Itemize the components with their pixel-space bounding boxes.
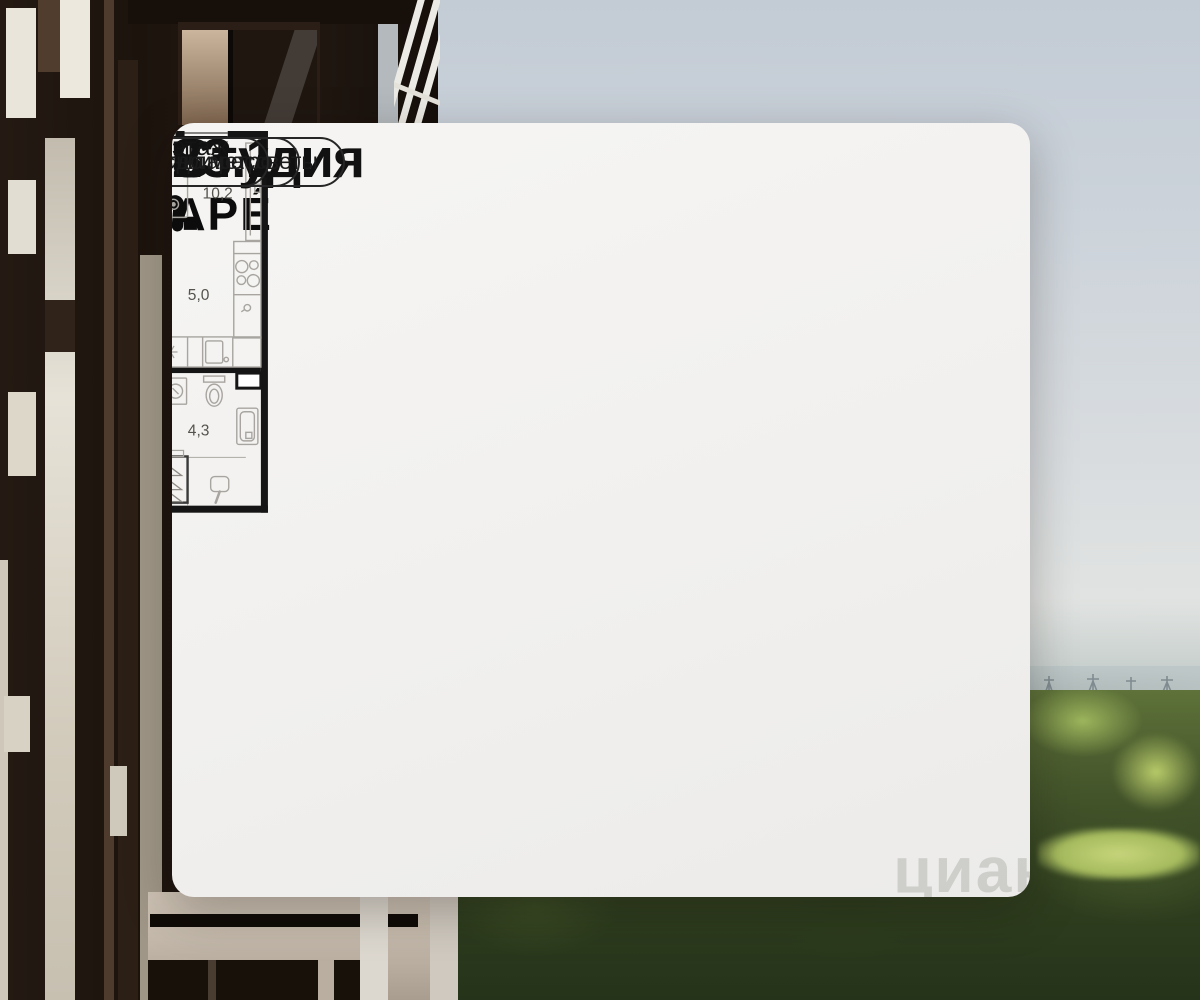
washing-machine-icon: [172, 378, 186, 404]
facade-stripe: [104, 0, 114, 1000]
room-area-kitchen: 5,0: [187, 287, 209, 304]
facade-panel: [60, 0, 90, 98]
facade-stripe: [0, 560, 8, 1000]
facade-roof-slab: [128, 0, 438, 24]
facade-notch: [45, 300, 75, 352]
toilet-icon: [203, 376, 224, 406]
balcony-strip: [148, 892, 458, 1000]
balcony-window-divider: [208, 960, 216, 1000]
facade-stripe: [45, 138, 75, 1000]
sunlit-treetops: [1112, 733, 1200, 811]
facade-panel: [6, 8, 36, 118]
facade-panel: [8, 180, 36, 254]
plan-vent-shaft: [236, 373, 260, 388]
shower-icon: [236, 408, 257, 444]
window-curtain: [182, 30, 228, 125]
facade-lattice: [394, 0, 440, 140]
wardrobe-icon: [172, 450, 187, 502]
kitchen-lower-counter-icon: [172, 337, 260, 367]
window-glass: [233, 30, 317, 125]
facade-panel: [110, 766, 127, 836]
washbasin-icon: [210, 477, 228, 503]
balcony-pillar: [430, 892, 458, 1000]
facade-window: [178, 22, 320, 125]
sunlit-meadow: [1038, 828, 1200, 880]
fridge-icon: [172, 346, 177, 358]
listing-card: НАЗАРЕ́: [172, 123, 1030, 897]
promo-image: НАЗАРЕ́: [0, 0, 1200, 1000]
facade-panel: [4, 696, 30, 752]
badge-class: бизнес-класс: [172, 137, 269, 187]
balcony-window-divider: [318, 960, 334, 1000]
facade-panel: [38, 0, 60, 72]
glass-reflection: [261, 30, 317, 125]
balcony-pillar: [360, 892, 388, 1000]
floor-plan-drawing: 10,2 5,0 3,6 4,3: [172, 131, 268, 581]
facade-panel: [118, 60, 138, 1000]
room-area-bathroom: 4,3: [187, 422, 209, 439]
facade-panel: [8, 392, 36, 476]
kitchen-counter-icon: [233, 241, 260, 337]
cian-watermark: циан: [893, 833, 1030, 897]
facade-stripe: [140, 255, 162, 1000]
